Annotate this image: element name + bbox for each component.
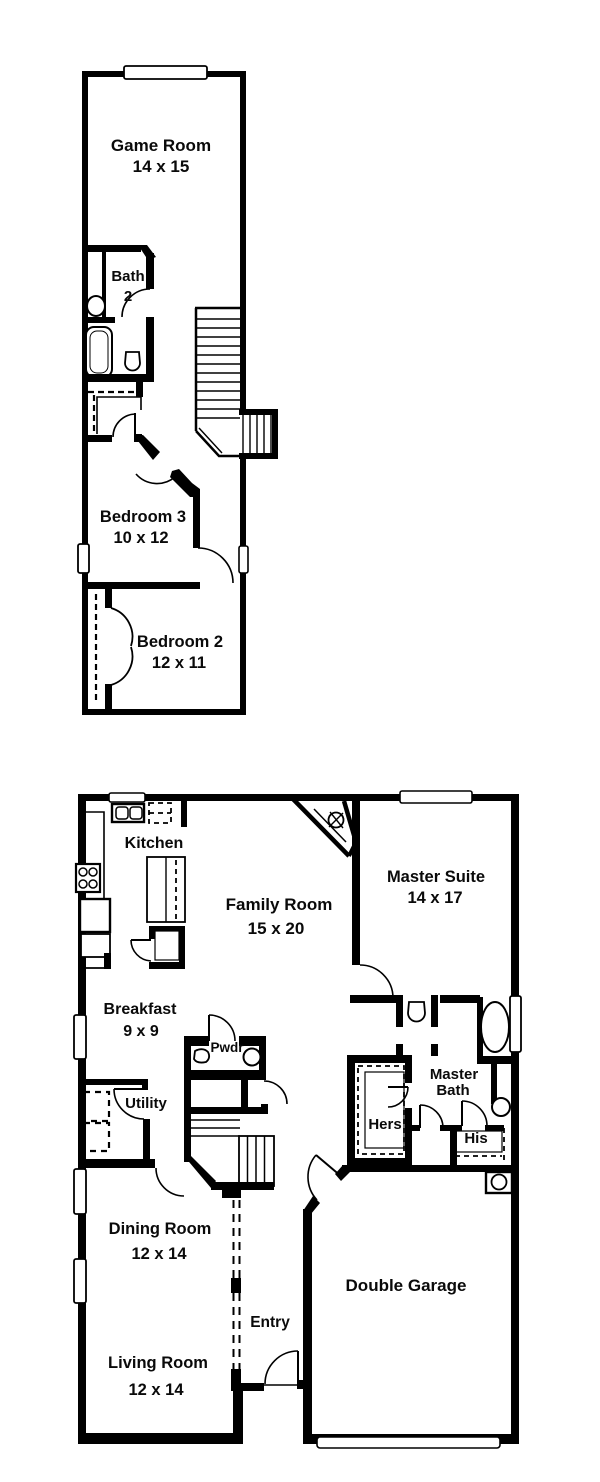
svg-text:12 x 11: 12 x 11 <box>152 654 206 672</box>
svg-text:12 x 14: 12 x 14 <box>131 1245 187 1263</box>
svg-text:Bedroom 2: Bedroom 2 <box>137 633 223 651</box>
svg-text:Utility: Utility <box>125 1095 167 1112</box>
svg-text:His: His <box>464 1130 487 1147</box>
svg-text:Master Suite: Master Suite <box>387 868 485 886</box>
svg-text:Family Room: Family Room <box>226 895 333 914</box>
svg-text:Bath: Bath <box>111 268 144 285</box>
svg-text:Bedroom 3: Bedroom 3 <box>100 508 186 526</box>
svg-text:14 x 17: 14 x 17 <box>407 889 462 907</box>
svg-text:Master: Master <box>430 1066 479 1083</box>
svg-text:Game Room: Game Room <box>111 136 211 155</box>
svg-text:Breakfast: Breakfast <box>104 1001 178 1018</box>
svg-text:9 x 9: 9 x 9 <box>123 1023 159 1040</box>
svg-text:15 x 20: 15 x 20 <box>248 919 305 938</box>
svg-text:Double Garage: Double Garage <box>346 1276 467 1295</box>
svg-text:12 x 14: 12 x 14 <box>128 1381 184 1399</box>
svg-text:10 x 12: 10 x 12 <box>113 529 168 547</box>
svg-text:Pwdr: Pwdr <box>210 1040 244 1055</box>
svg-text:Dining Room: Dining Room <box>109 1220 212 1238</box>
svg-text:Living Room: Living Room <box>108 1354 208 1372</box>
svg-text:Hers: Hers <box>368 1116 401 1133</box>
svg-text:Entry: Entry <box>250 1314 290 1331</box>
svg-text:2: 2 <box>124 288 132 305</box>
svg-text:Kitchen: Kitchen <box>125 835 184 852</box>
svg-text:14 x 15: 14 x 15 <box>133 157 190 176</box>
svg-text:Bath: Bath <box>436 1082 469 1099</box>
